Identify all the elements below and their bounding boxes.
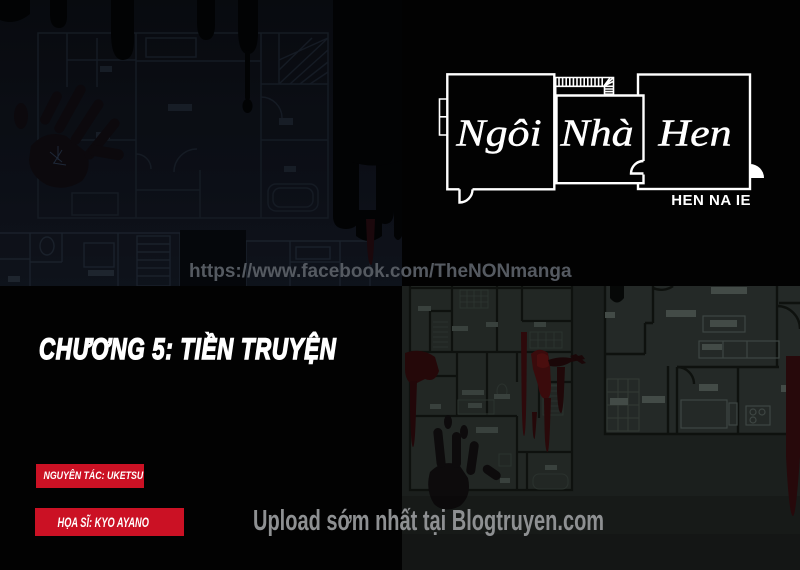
svg-text:Nhà: Nhà bbox=[559, 111, 633, 154]
svg-text:Ngôi: Ngôi bbox=[455, 111, 542, 154]
svg-text:Hen: Hen bbox=[657, 111, 731, 154]
svg-text:HEN NA IE: HEN NA IE bbox=[671, 192, 751, 209]
